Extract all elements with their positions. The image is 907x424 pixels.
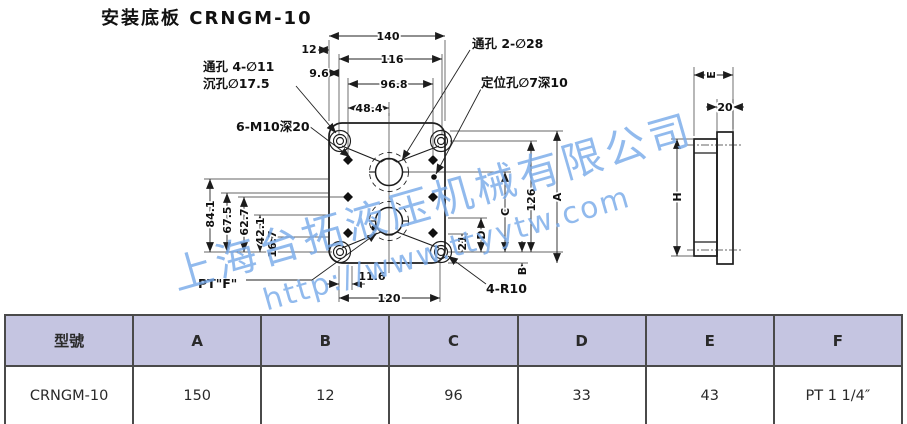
- dim-e: E: [705, 71, 718, 79]
- technical-drawing: 140 12 116 9.6 96.8 48.4 11.6 120 84.1 6…: [0, 0, 907, 314]
- col-header-a: A: [133, 315, 261, 366]
- dim-c: C: [499, 208, 512, 216]
- dim-b: B: [516, 267, 529, 275]
- callout-leaders: [246, 50, 486, 284]
- face-line-top: [342, 146, 439, 162]
- side-flange: [717, 132, 733, 264]
- cell-c: 96: [389, 366, 517, 424]
- spec-table-data-row: CRNGM-10 150 12 96 33 43 PT 1 1/4″: [5, 366, 902, 424]
- pin-hole-left: [371, 225, 377, 231]
- dim-126: 126: [525, 188, 538, 211]
- dim-9-6: 9.6: [309, 67, 329, 80]
- dim-62-7: 62.7: [238, 208, 251, 235]
- cell-f: PT 1 1/4″: [774, 366, 902, 424]
- col-header-c: C: [389, 315, 517, 366]
- spec-table-header-row: 型號 A B C D E F: [5, 315, 902, 366]
- dim-84-1: 84.1: [204, 200, 217, 227]
- dim-h: H: [671, 192, 684, 201]
- col-header-b: B: [261, 315, 389, 366]
- dimension-labels: 140 12 116 9.6 96.8 48.4 11.6 120 84.1 6…: [204, 30, 733, 305]
- pin-hole-right: [431, 174, 437, 180]
- dim-140: 140: [377, 30, 400, 43]
- cell-model: CRNGM-10: [5, 366, 133, 424]
- callout-tapped-holes: 6-M10深20: [236, 119, 310, 134]
- dim-20: 20: [717, 101, 733, 114]
- cell-a: 150: [133, 366, 261, 424]
- dim-21: 21: [456, 235, 469, 250]
- side-extension-lines: [671, 67, 733, 256]
- callout-labels: 通孔 4-∅11 沉孔∅17.5 6-M10深20 通孔 2-∅28 定位孔∅7…: [198, 36, 568, 296]
- side-view: [671, 67, 744, 264]
- dim-120: 120: [378, 292, 401, 305]
- callout-counterbore: 沉孔∅17.5: [203, 76, 270, 91]
- cell-e: 43: [646, 366, 774, 424]
- col-header-f: F: [774, 315, 902, 366]
- dim-d: D: [475, 230, 488, 239]
- callout-through-holes-4: 通孔 4-∅11: [203, 59, 274, 74]
- side-body: [694, 139, 717, 256]
- col-header-model: 型號: [5, 315, 133, 366]
- m10-holes: [343, 155, 438, 238]
- dim-11-6: 11.6: [358, 270, 385, 283]
- cell-d: 33: [518, 366, 646, 424]
- col-header-d: D: [518, 315, 646, 366]
- dim-67-5: 67.5: [221, 206, 234, 233]
- dim-116: 116: [381, 53, 404, 66]
- dim-a: A: [551, 192, 564, 201]
- side-dimension-lines: [677, 75, 744, 256]
- callout-corner-radius: 4-R10: [486, 281, 527, 296]
- cell-b: 12: [261, 366, 389, 424]
- callout-port-thread: PT"F": [198, 276, 237, 291]
- dim-96-8: 96.8: [380, 78, 407, 91]
- dim-16-7: 16.7: [266, 230, 279, 257]
- callout-pin-hole: 定位孔∅7深10: [480, 75, 568, 90]
- spec-table: 型號 A B C D E F CRNGM-10 150 12 96 33 43 …: [4, 314, 903, 424]
- dim-48-4: 48.4: [355, 102, 382, 115]
- callout-through-holes-2: 通孔 2-∅28: [472, 36, 543, 51]
- page: 安装底板 CRNGM-10: [0, 0, 907, 424]
- col-header-e: E: [646, 315, 774, 366]
- dim-12: 12: [301, 43, 316, 56]
